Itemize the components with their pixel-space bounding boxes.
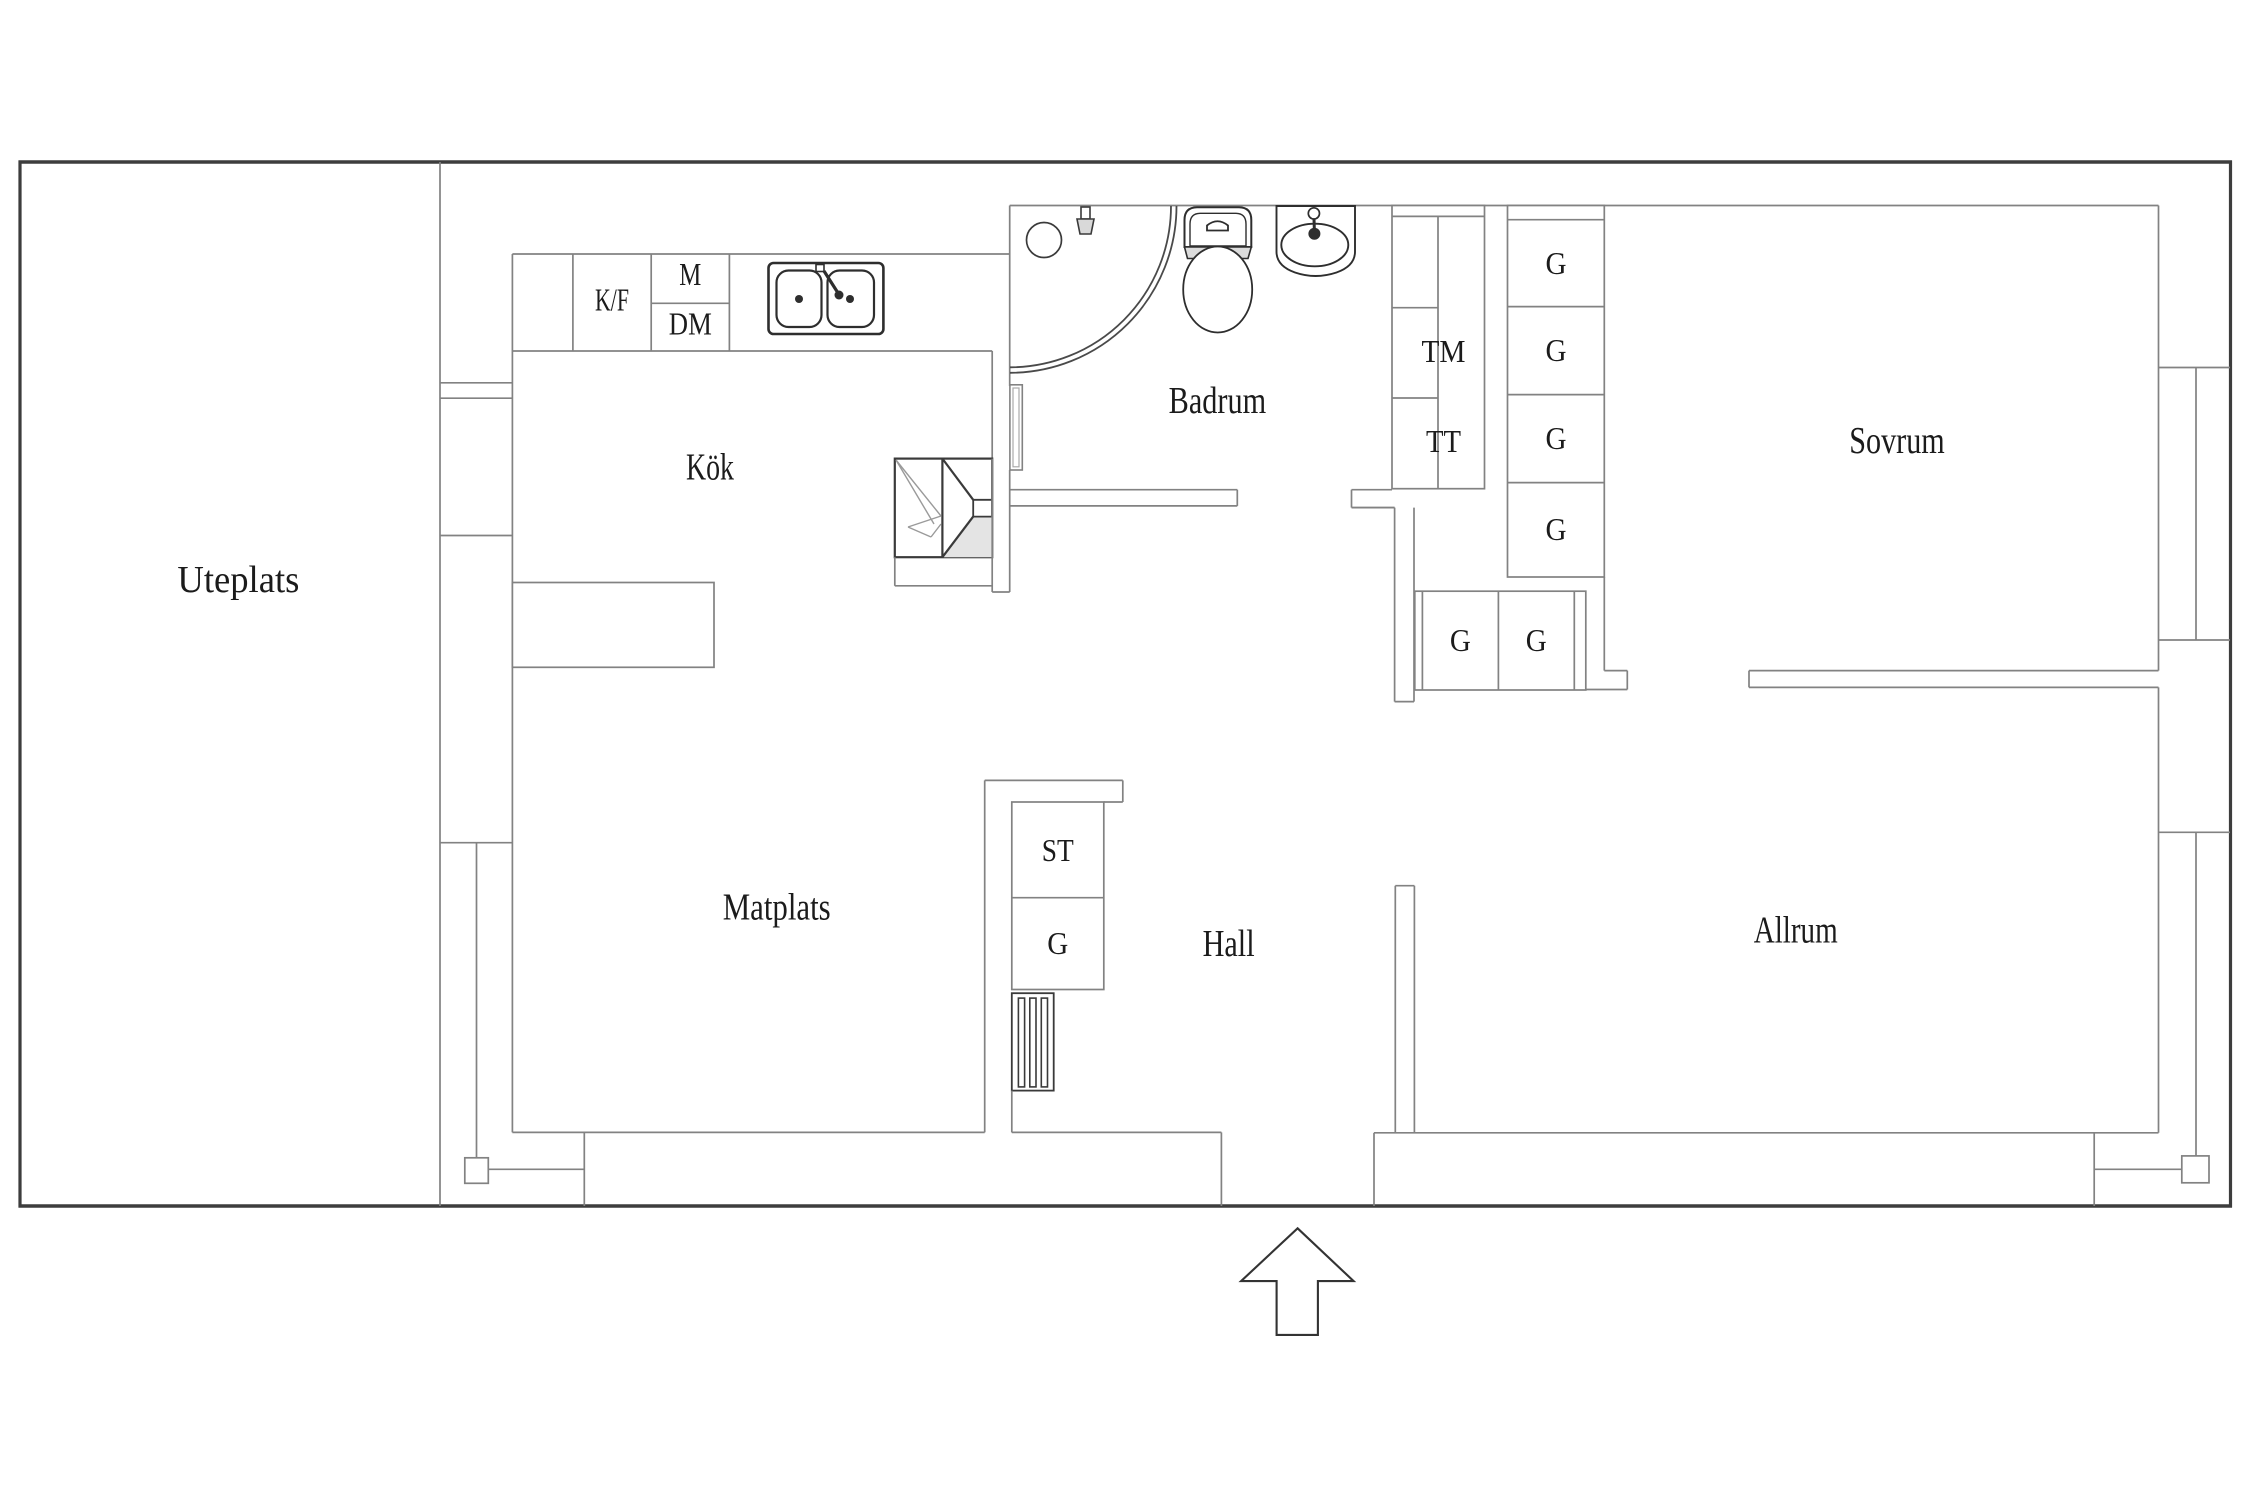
svg-text:Allrum: Allrum xyxy=(1754,909,1838,951)
svg-text:TT: TT xyxy=(1426,423,1461,459)
svg-text:ST: ST xyxy=(1042,832,1074,868)
svg-text:TM: TM xyxy=(1422,333,1466,369)
svg-text:Sovrum: Sovrum xyxy=(1849,420,1945,462)
svg-text:G: G xyxy=(1450,622,1471,658)
svg-text:G: G xyxy=(1526,622,1547,658)
svg-text:G: G xyxy=(1546,511,1567,547)
svg-text:K/F: K/F xyxy=(595,282,629,318)
svg-text:G: G xyxy=(1546,420,1567,456)
svg-text:Badrum: Badrum xyxy=(1169,380,1267,422)
svg-text:Uteplats: Uteplats xyxy=(177,559,299,601)
svg-text:Kök: Kök xyxy=(686,447,734,489)
svg-text:G: G xyxy=(1546,245,1567,281)
svg-text:G: G xyxy=(1047,925,1068,961)
svg-text:Hall: Hall xyxy=(1203,923,1255,965)
svg-text:M: M xyxy=(679,256,701,292)
svg-text:Matplats: Matplats xyxy=(723,887,831,929)
svg-text:DM: DM xyxy=(669,306,712,342)
svg-text:G: G xyxy=(1546,332,1567,368)
